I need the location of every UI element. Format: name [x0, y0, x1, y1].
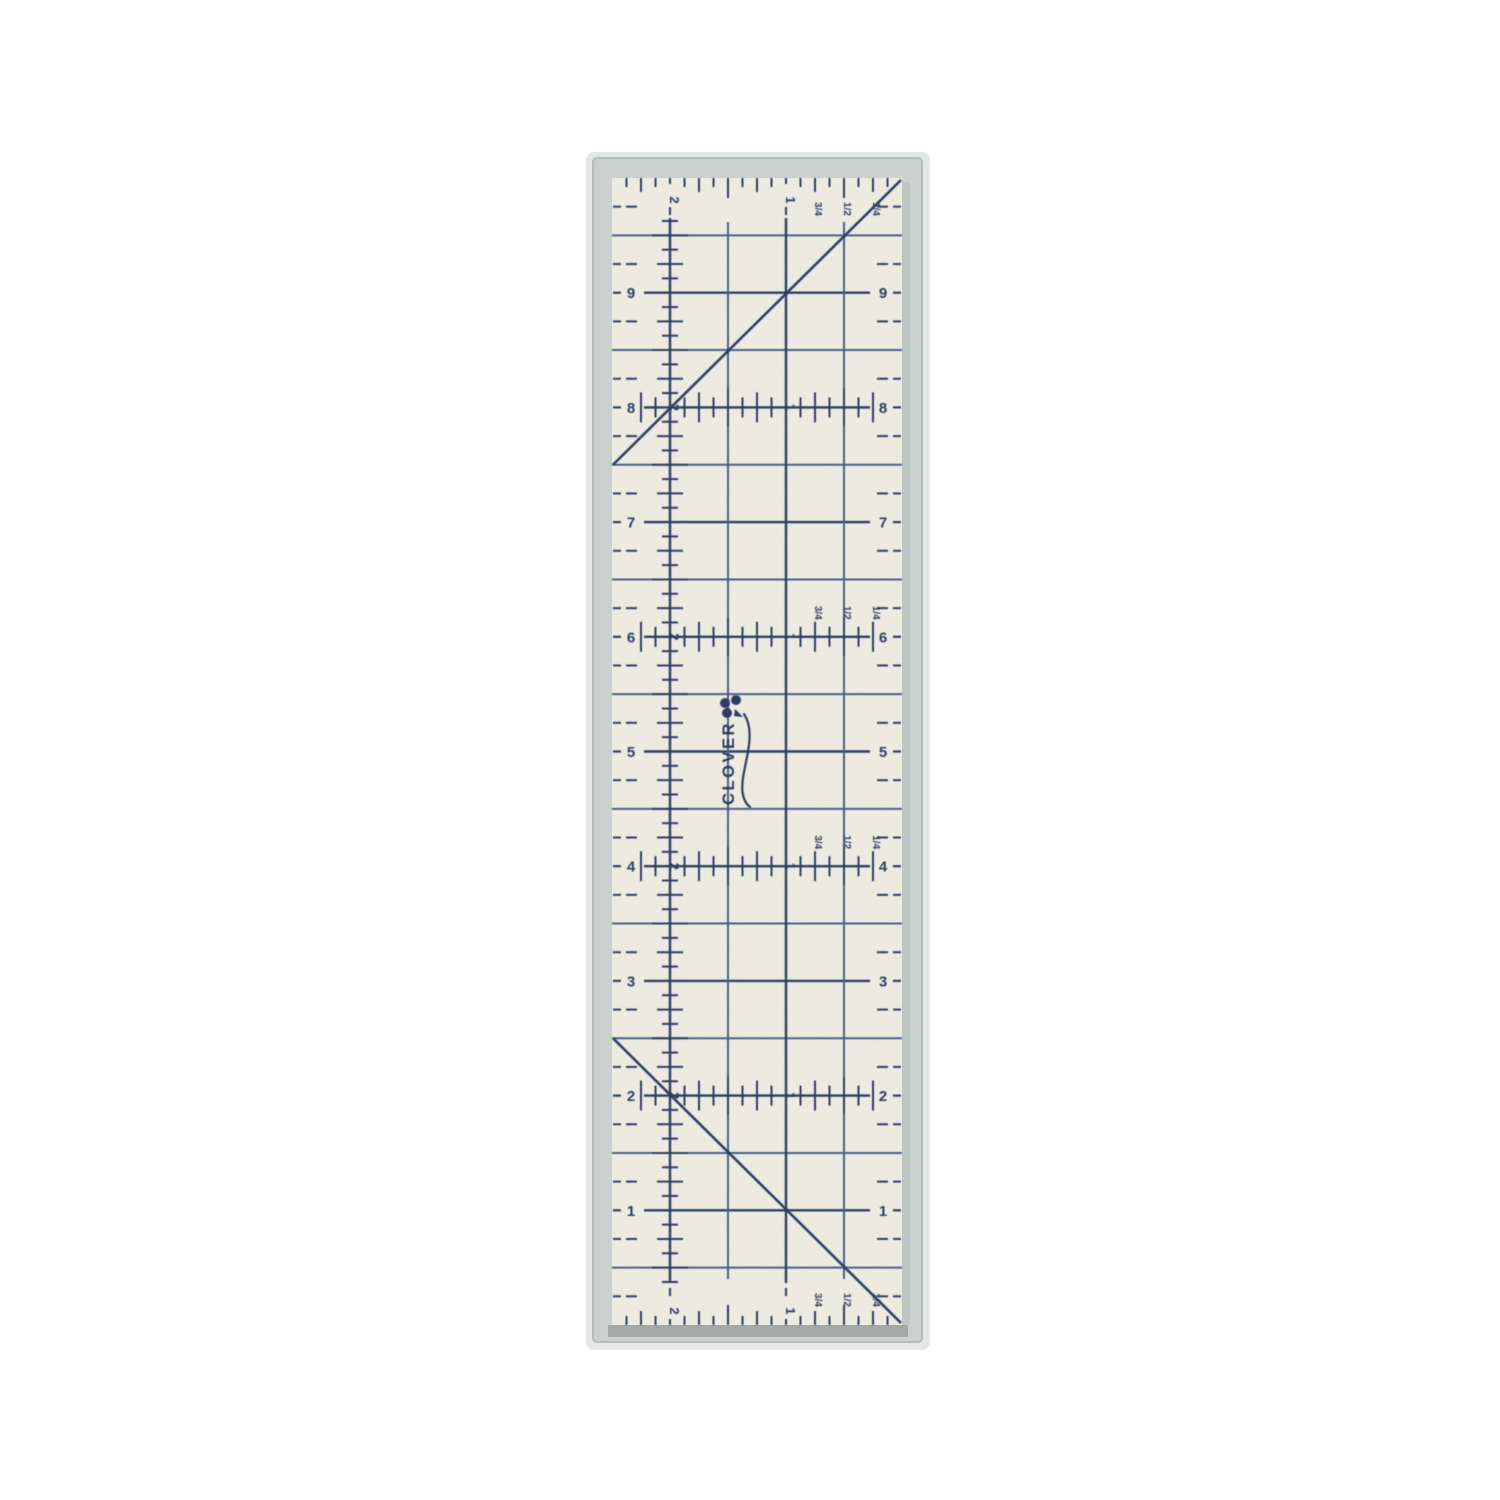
- fraction-label: 1/2: [841, 835, 852, 849]
- left-inch-label: 4: [627, 859, 636, 876]
- top-edge-number: 2: [667, 196, 682, 203]
- fraction-label: 3/4: [812, 606, 823, 620]
- row-scale-number: 1: [783, 404, 798, 411]
- row-scale-number: 2: [667, 863, 682, 870]
- product-photo-canvas: 112233445566778899212121213/41/21/43/41/…: [0, 0, 1500, 1500]
- ruler-markings: 112233445566778899212121213/41/21/43/41/…: [612, 178, 902, 1325]
- fraction-label: 3/4: [812, 202, 823, 216]
- bottom-edge-number: 1: [783, 1307, 798, 1314]
- row-scale-number: 1: [783, 633, 798, 640]
- right-inch-label: 6: [879, 629, 887, 646]
- bottom-edge-number: 2: [667, 1307, 682, 1314]
- right-inch-label: 5: [879, 744, 887, 761]
- left-inch-label: 5: [627, 744, 635, 761]
- fraction-label: 3/4: [812, 835, 823, 849]
- fraction-label: 1/2: [841, 1293, 852, 1307]
- fraction-label: 1/2: [841, 202, 852, 216]
- right-inch-label: 7: [879, 515, 887, 532]
- right-inch-label: 4: [879, 859, 888, 876]
- quilting-ruler: 112233445566778899212121213/41/21/43/41/…: [0, 0, 1500, 1500]
- left-inch-label: 1: [627, 1203, 635, 1220]
- left-inch-label: 7: [627, 515, 635, 532]
- row-scale-number: 1: [783, 1092, 798, 1099]
- left-inch-label: 8: [627, 400, 635, 417]
- right-inch-label: 1: [879, 1203, 887, 1220]
- right-inch-label: 9: [879, 285, 887, 302]
- right-inch-label: 8: [879, 400, 887, 417]
- left-inch-label: 9: [627, 285, 635, 302]
- row-scale-number: 2: [667, 633, 682, 640]
- fraction-label: 1/4: [870, 606, 881, 620]
- row-scale-number: 1: [783, 863, 798, 870]
- left-inch-label: 6: [627, 629, 635, 646]
- top-edge-number: 1: [783, 196, 798, 203]
- brand-text: CLOVER: [720, 721, 738, 805]
- fraction-label: 1/4: [870, 835, 881, 849]
- left-inch-label: 2: [627, 1088, 635, 1105]
- right-inch-label: 2: [879, 1088, 887, 1105]
- fraction-label: 1/2: [841, 606, 852, 620]
- right-inch-label: 3: [879, 973, 887, 990]
- left-inch-label: 3: [627, 973, 635, 990]
- fraction-label: 3/4: [812, 1293, 823, 1307]
